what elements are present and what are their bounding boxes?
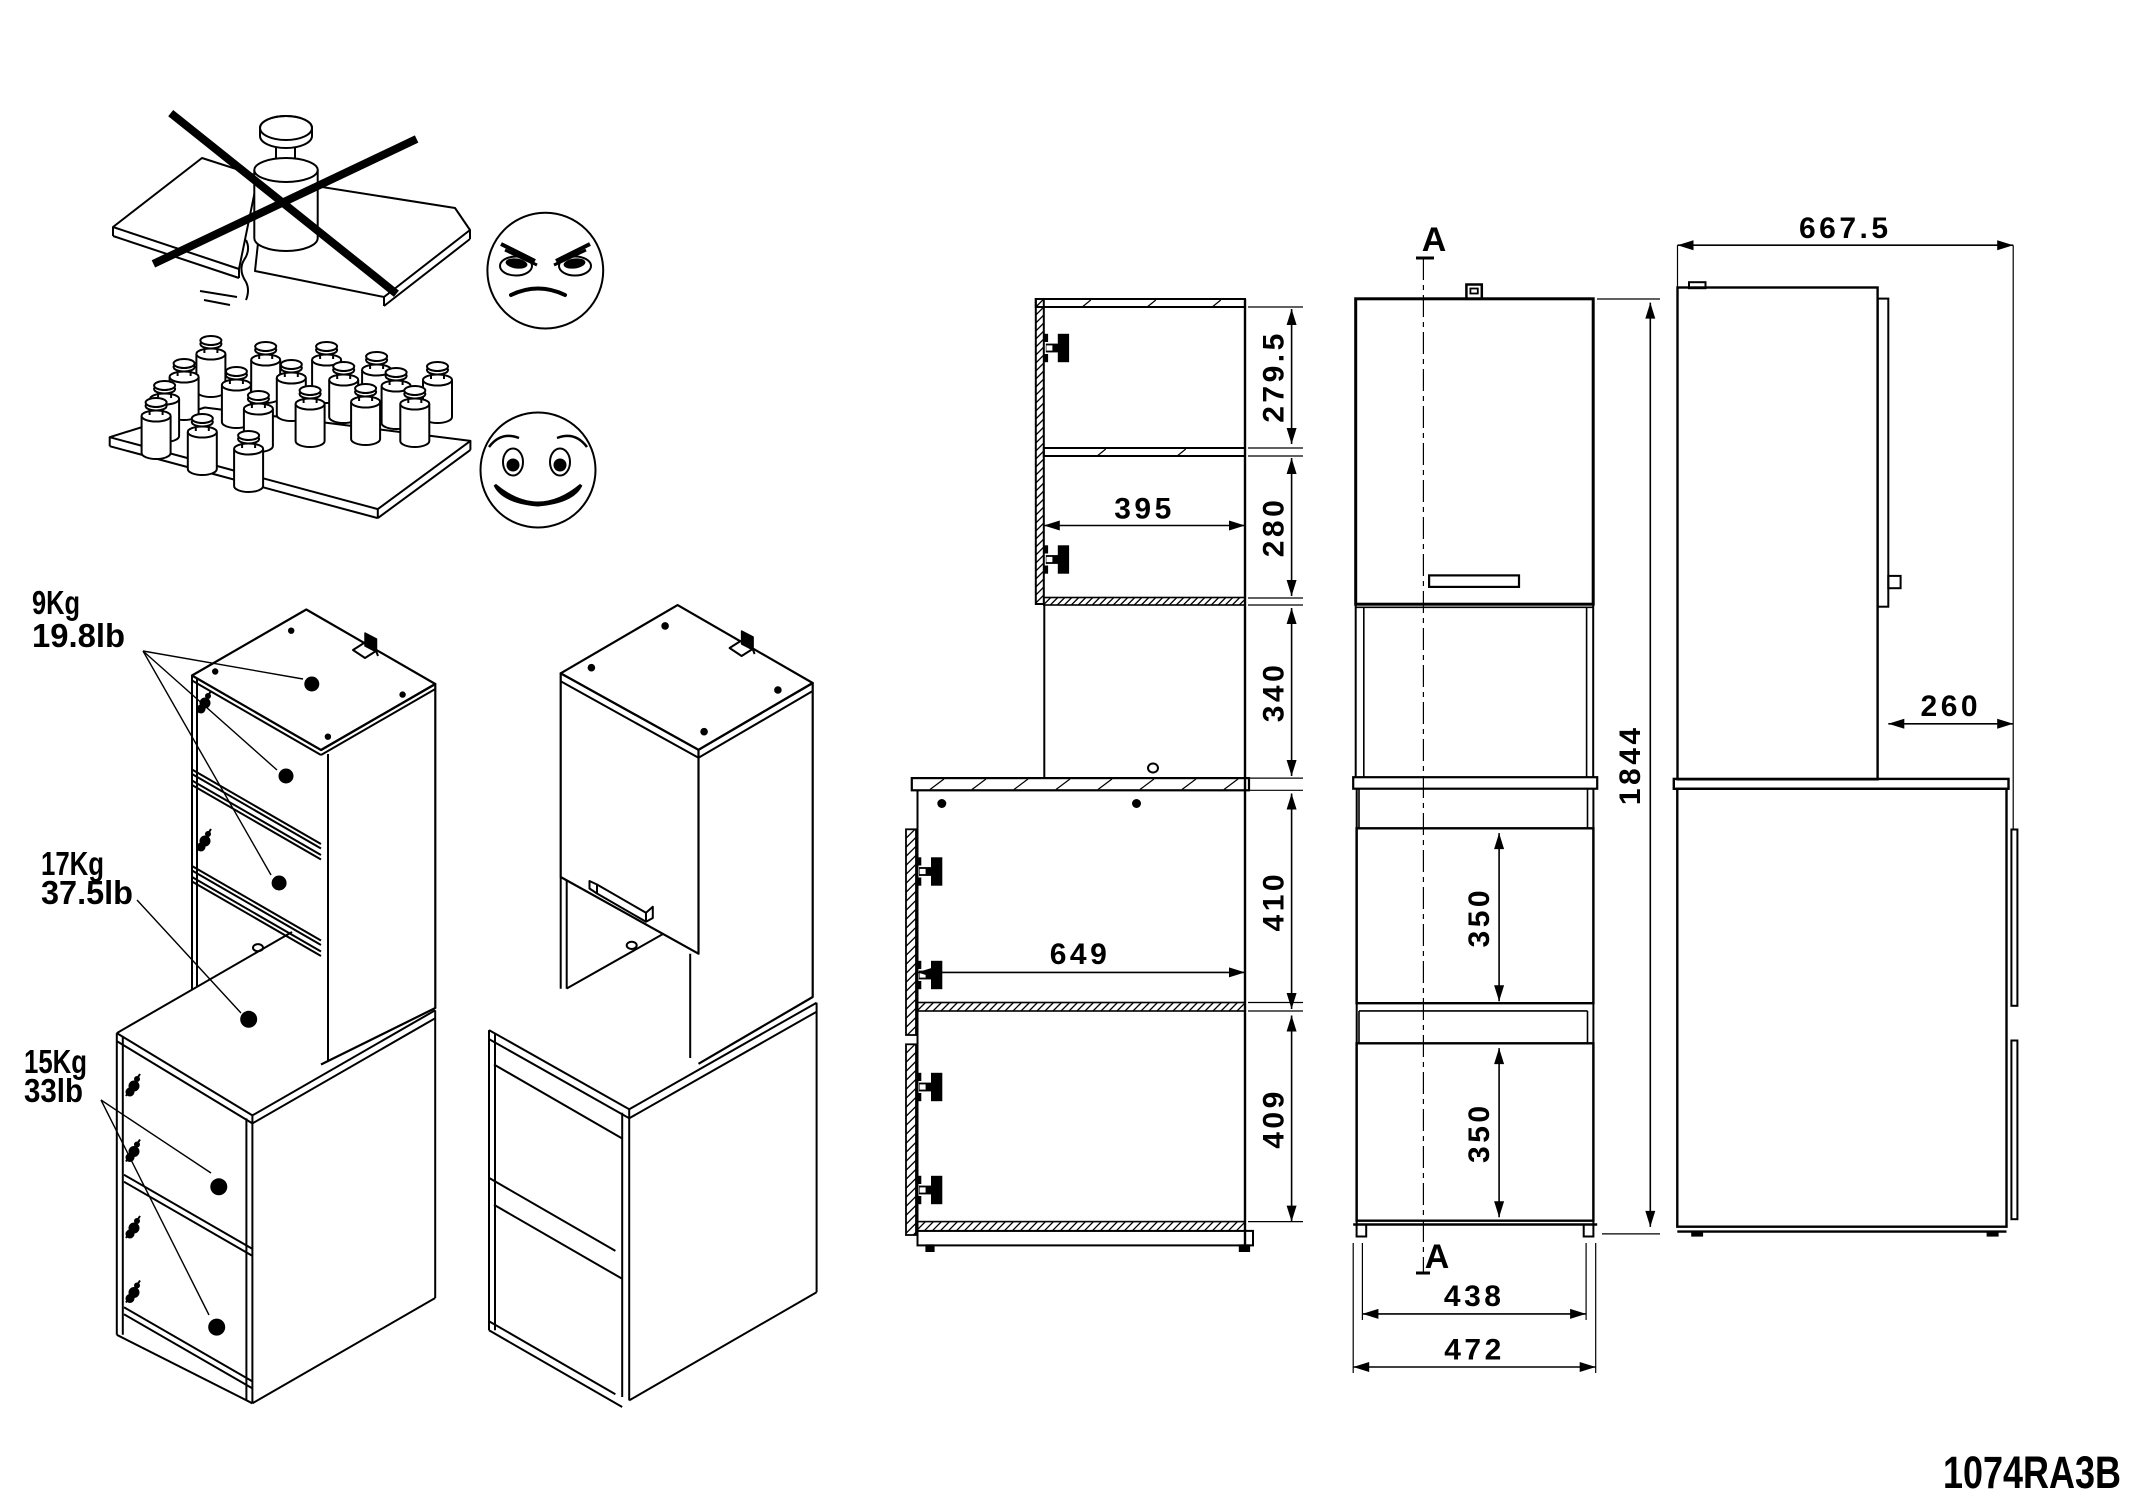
svg-text:667.5: 667.5 xyxy=(1799,212,1892,245)
svg-text:A: A xyxy=(1422,221,1447,259)
svg-text:37.5lb: 37.5lb xyxy=(41,874,133,911)
svg-text:649: 649 xyxy=(1050,938,1111,971)
svg-text:260: 260 xyxy=(1921,690,1982,723)
svg-text:350: 350 xyxy=(1463,887,1496,948)
svg-text:472: 472 xyxy=(1444,1334,1505,1367)
svg-text:438: 438 xyxy=(1444,1280,1505,1313)
svg-text:395: 395 xyxy=(1114,492,1175,525)
svg-text:9Kg: 9Kg xyxy=(32,584,80,621)
svg-text:33lb: 33lb xyxy=(24,1072,83,1109)
svg-text:280: 280 xyxy=(1258,497,1291,558)
svg-text:350: 350 xyxy=(1463,1102,1496,1163)
svg-text:279.5: 279.5 xyxy=(1258,330,1291,423)
svg-text:409: 409 xyxy=(1258,1088,1291,1149)
svg-text:19.8lb: 19.8lb xyxy=(32,617,125,654)
svg-text:410: 410 xyxy=(1258,871,1291,932)
svg-text:1074RA3B: 1074RA3B xyxy=(1943,1447,2121,1498)
svg-text:340: 340 xyxy=(1258,662,1291,723)
svg-text:1844: 1844 xyxy=(1614,724,1647,805)
svg-text:A: A xyxy=(1425,1238,1450,1276)
